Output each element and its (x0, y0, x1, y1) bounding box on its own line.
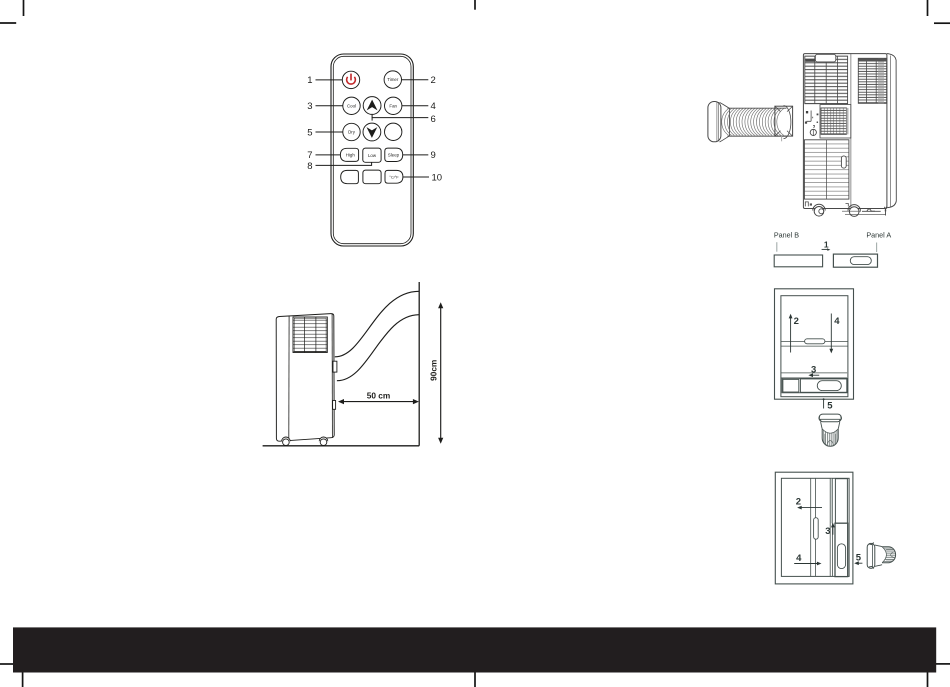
svg-text:2: 2 (794, 316, 799, 327)
svg-text:2: 2 (431, 75, 436, 86)
svg-text:5: 5 (307, 127, 312, 138)
svg-text:Dry: Dry (348, 130, 356, 135)
svg-text:2: 2 (796, 497, 801, 508)
svg-text:°C/°F: °C/°F (389, 175, 399, 180)
svg-text:8: 8 (307, 161, 312, 172)
svg-text:4: 4 (431, 101, 436, 112)
svg-text:10: 10 (432, 172, 443, 183)
svg-text:9: 9 (431, 150, 436, 161)
svg-text:Panel B: Panel B (774, 231, 799, 240)
svg-text:3: 3 (307, 101, 312, 112)
svg-text:Low: Low (368, 153, 377, 158)
svg-text:1: 1 (307, 75, 312, 86)
svg-text:5: 5 (827, 401, 833, 412)
svg-text:90cm: 90cm (428, 360, 438, 381)
svg-text:50 cm: 50 cm (367, 390, 391, 400)
svg-text:Cool: Cool (347, 103, 356, 108)
svg-text:4: 4 (796, 553, 802, 564)
svg-text:7: 7 (307, 150, 312, 161)
svg-text:6: 6 (431, 114, 436, 125)
svg-text:High: High (346, 153, 356, 158)
svg-text:3: 3 (825, 526, 830, 537)
svg-text:3: 3 (811, 364, 816, 375)
svg-text:4: 4 (834, 316, 840, 327)
svg-text:Fan: Fan (389, 103, 397, 108)
svg-text:Timer: Timer (387, 77, 399, 82)
svg-text:Panel A: Panel A (866, 231, 891, 240)
svg-text:1: 1 (824, 239, 829, 249)
svg-text:Sleep: Sleep (388, 153, 400, 158)
